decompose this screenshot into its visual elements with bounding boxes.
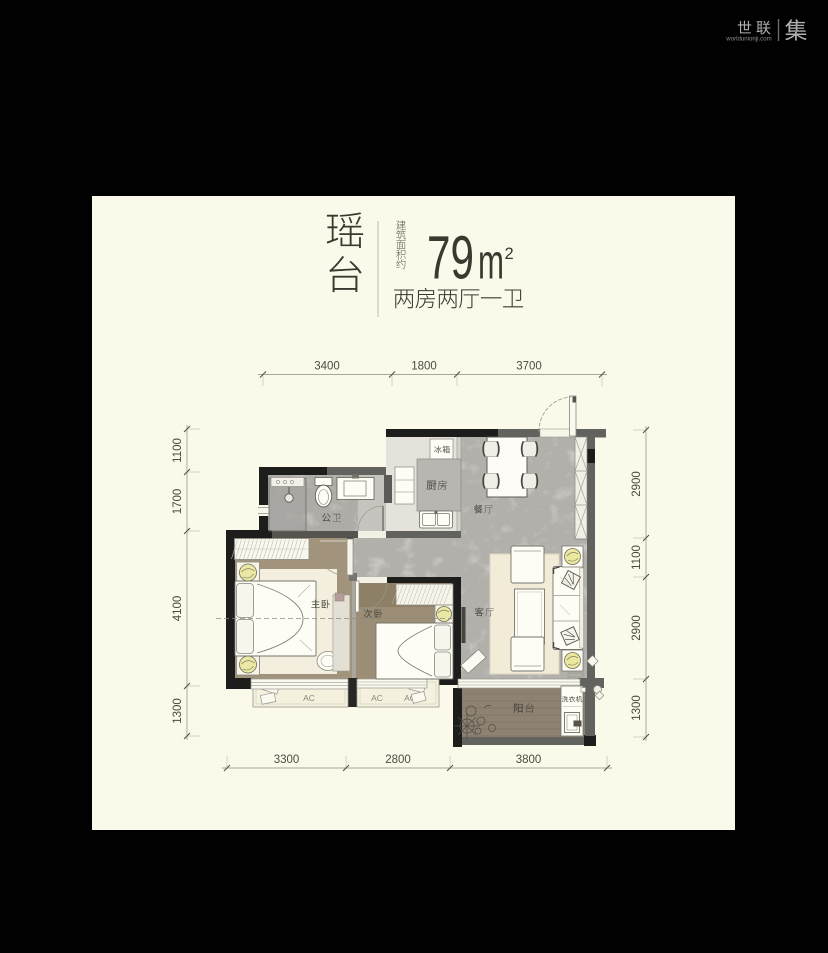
svg-text:2800: 2800 <box>385 754 411 766</box>
svg-text:1700: 1700 <box>172 489 184 515</box>
svg-text:1100: 1100 <box>631 545 643 570</box>
svg-text:2900: 2900 <box>631 615 643 641</box>
svg-text:worldunionji.com: worldunionji.com <box>725 36 771 43</box>
svg-text:AC: AC <box>303 693 315 703</box>
svg-text:2: 2 <box>505 245 514 263</box>
svg-text:3400: 3400 <box>314 361 340 373</box>
svg-text:79: 79 <box>427 224 474 292</box>
svg-text:3700: 3700 <box>516 361 542 373</box>
svg-text:2900: 2900 <box>631 471 643 497</box>
svg-text:1100: 1100 <box>172 438 184 463</box>
svg-text:3300: 3300 <box>274 754 300 766</box>
svg-text:1300: 1300 <box>631 695 643 721</box>
svg-text:4100: 4100 <box>172 596 184 622</box>
svg-text:AC: AC <box>371 693 383 703</box>
svg-text:m: m <box>478 236 504 290</box>
svg-text:1300: 1300 <box>172 698 184 724</box>
svg-text:3800: 3800 <box>516 754 542 766</box>
svg-text:1800: 1800 <box>411 361 437 373</box>
